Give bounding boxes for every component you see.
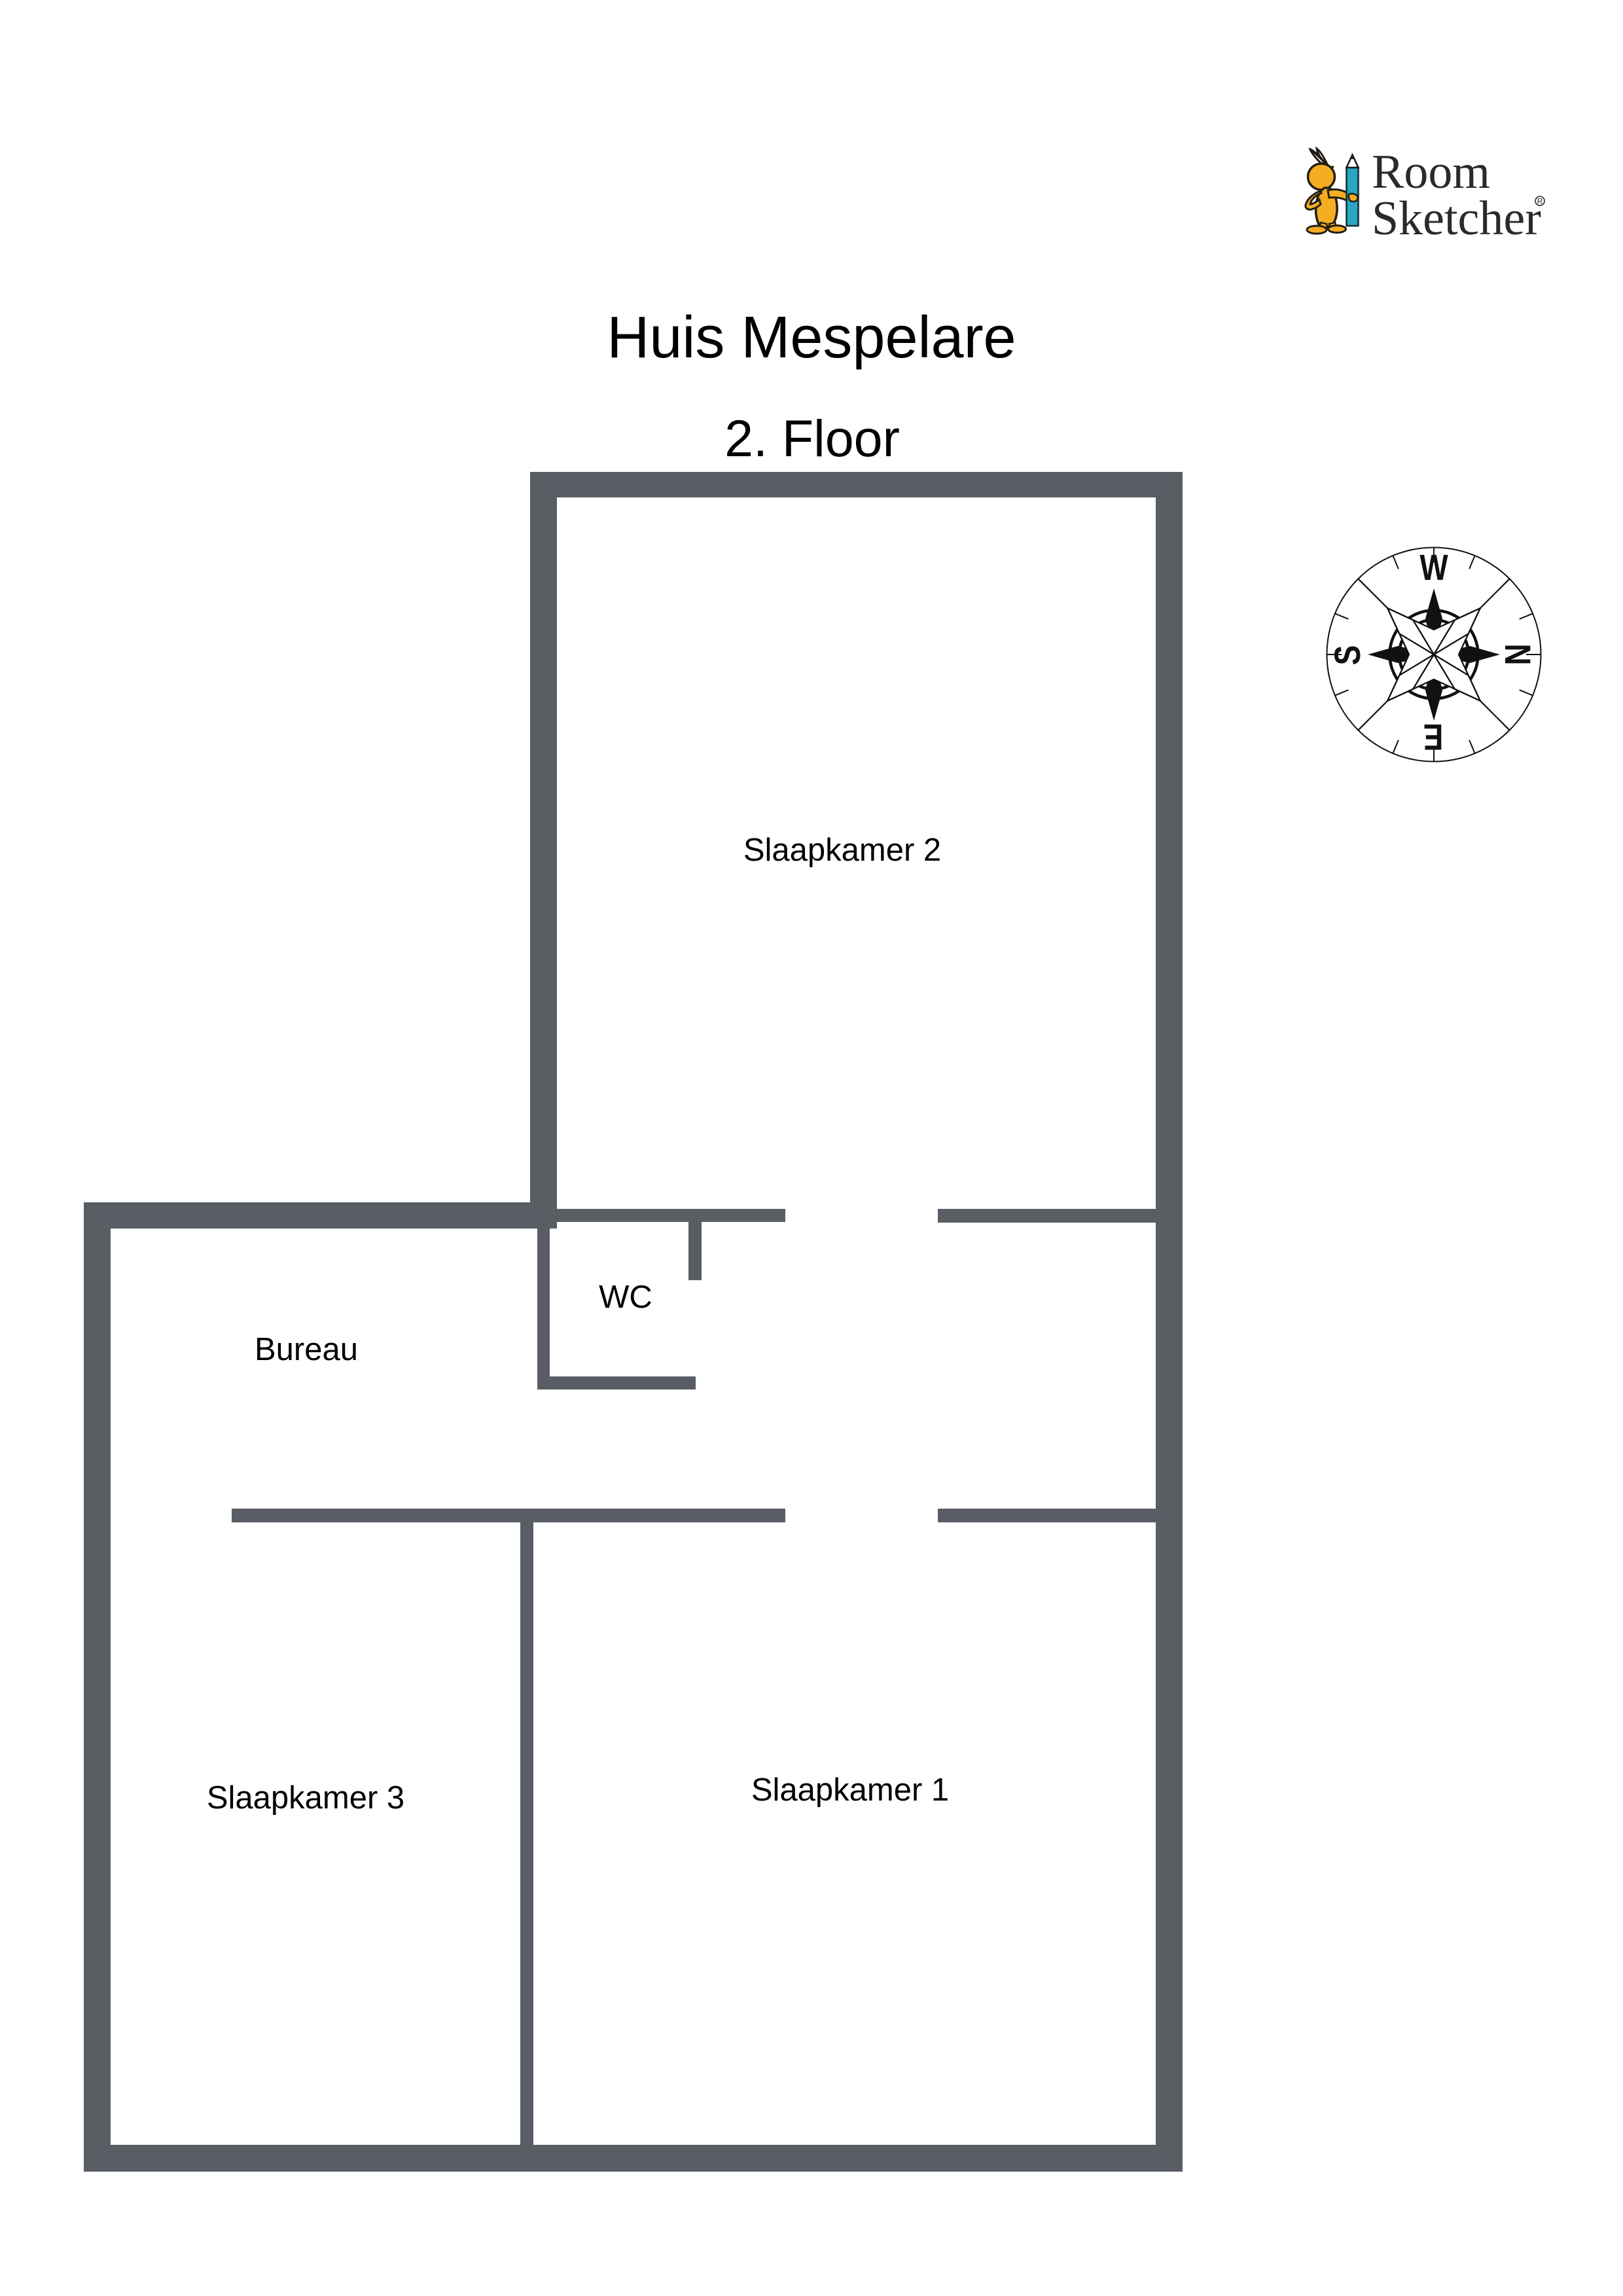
svg-text:W: W xyxy=(1419,547,1448,588)
svg-text:Slaapkamer 2: Slaapkamer 2 xyxy=(743,833,941,868)
svg-text:Room: Room xyxy=(1372,145,1490,199)
svg-text:R: R xyxy=(1537,197,1543,206)
svg-text:Slaapkamer 3: Slaapkamer 3 xyxy=(207,1780,404,1816)
svg-text:Sketcher: Sketcher xyxy=(1372,192,1541,245)
svg-text:N: N xyxy=(1497,643,1538,665)
svg-text:Bureau: Bureau xyxy=(255,1332,358,1367)
svg-text:Huis Mespelare: Huis Mespelare xyxy=(607,305,1016,370)
svg-text:S: S xyxy=(1327,645,1368,666)
svg-text:2. Floor: 2. Floor xyxy=(724,409,900,467)
svg-text:Slaapkamer 1: Slaapkamer 1 xyxy=(751,1772,949,1808)
svg-text:WC: WC xyxy=(599,1280,652,1315)
svg-text:E: E xyxy=(1423,717,1444,757)
